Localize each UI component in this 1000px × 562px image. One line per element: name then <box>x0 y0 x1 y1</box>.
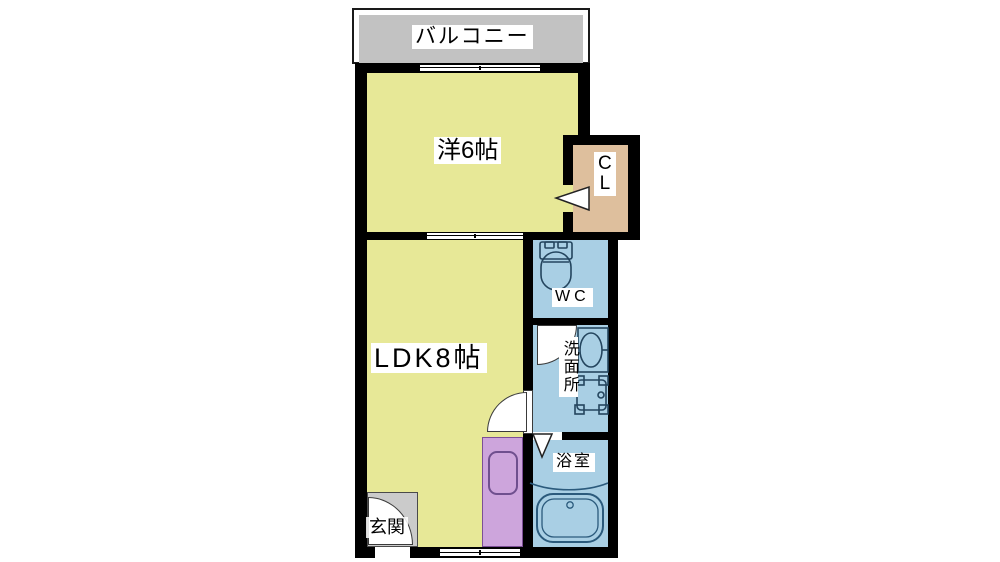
closet-label-l: L <box>598 174 612 194</box>
ldk-label: LDK8帖 <box>371 343 487 373</box>
entrance-label: 玄関 <box>366 517 408 538</box>
bathroom-label: 浴室 <box>553 453 595 472</box>
bathtub-icon <box>530 483 608 542</box>
closet-label-c: C <box>598 154 612 174</box>
fixtures-layer <box>0 0 1000 562</box>
toilet-icon <box>540 242 572 290</box>
western-room-label: 洋6帖 <box>434 137 501 164</box>
wc-label: WC <box>552 288 593 307</box>
washroom-label: 洗面所 <box>559 337 578 397</box>
bathroom-door-triangle-icon <box>533 434 552 457</box>
floor-plan: バルコニー 洋6帖 C L LDK8帖 WC 洗面所 浴室 玄関 <box>0 0 1000 562</box>
closet-label: C L <box>594 152 616 196</box>
balcony-label: バルコニー <box>412 25 533 49</box>
washing-machine-icon <box>575 376 608 414</box>
kitchen-sink-icon <box>489 452 517 494</box>
closet-door-triangle-icon <box>556 187 589 210</box>
sink-icon <box>578 328 608 372</box>
